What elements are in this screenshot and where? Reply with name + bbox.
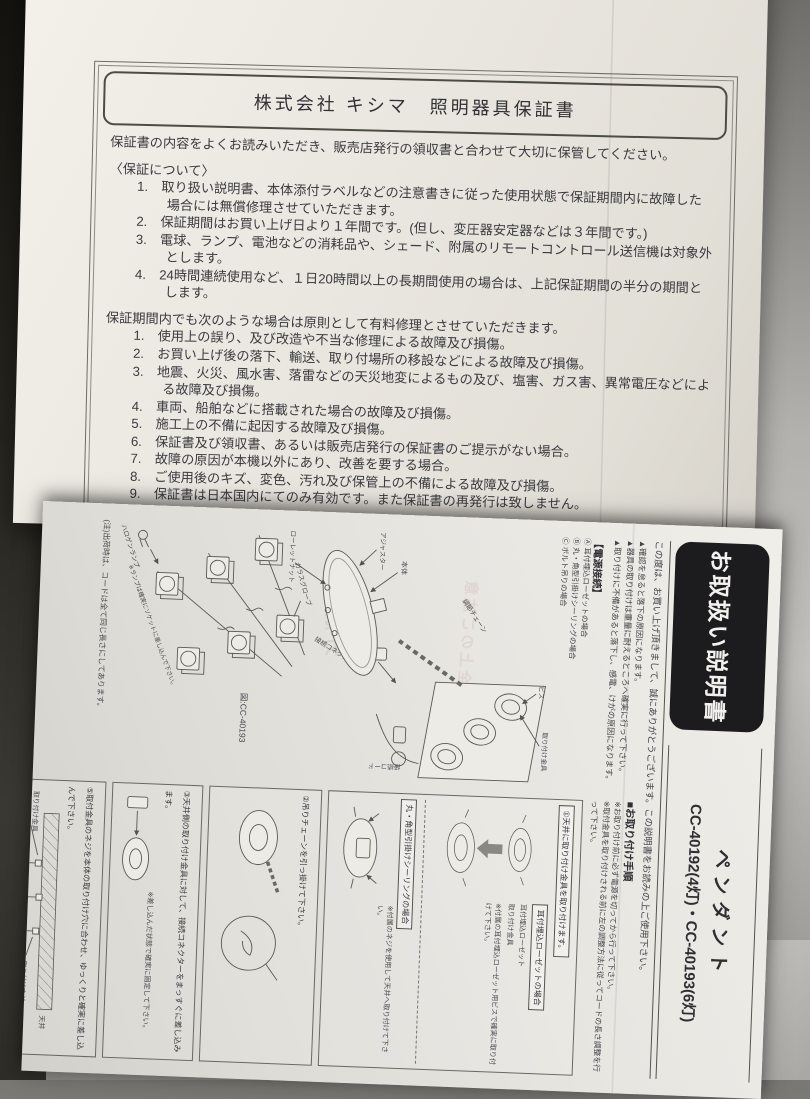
step-1-caption: ①天井に取り付け金具を取り付けます。 — [553, 805, 575, 958]
product-type: ペンダント — [706, 849, 738, 980]
step-panel-4: ⑤取付金具のネジを本体の取り付け穴に合わせ、ゆっくりと確実に差し込んで下さい。 … — [21, 774, 106, 1057]
step-panel-1: ①天井に取り付け金具を取り付けます。 — [318, 790, 583, 1076]
step-1-case-b: 丸・角型引掛けシーリングの場合 — [396, 799, 417, 930]
step-panel-2: ②吊りチェーンを引っ掛けて下さい。 — [199, 786, 323, 1066]
step-2-diagram-chain-hook — [211, 792, 299, 1045]
manual-content: お取扱い説明書 ペンダント CC-40192(4灯)・CC-40193(6灯) … — [32, 517, 770, 1082]
step-5-caption: ⑤取付金具のネジを本体の取り付け穴に合わせ、ゆっくりと確実に差し込んで下さい。 — [66, 786, 95, 1050]
part-label-body: 本体 — [400, 561, 410, 575]
step-1-note-b: ※付属のネジを使用して天井へ取り付けて下さい。 — [368, 905, 394, 1063]
manual-title: お取扱い説明書 — [699, 549, 740, 725]
part-label-halogen-lamp: ハロゲンランプ — [120, 523, 143, 569]
warranty-title: 株式会社 キシマ 照明器具保証書 — [253, 89, 577, 123]
warranty-sheet: 株式会社 キシマ 照明器具保証書 保証書の内容をよくお読みいただき、販売店発行の… — [13, 0, 769, 541]
manual-title-box: お取扱い説明書 — [669, 541, 770, 732]
step-1-diagram-ceiling-cap — [330, 796, 398, 899]
exploded-view-diagram: ビス 取り付け金具 接続コード 調節チェーン — [110, 520, 559, 789]
part-label-glass-globe: ガラスグローブ — [294, 561, 315, 607]
label-ceiling: 天井 — [37, 1015, 47, 1029]
part-label-chain: 調節チェーン — [461, 597, 490, 634]
step-1-note-a: ※付属の耳付埋込ローゼット用ビスで確実に取り付けて下さい。 — [476, 903, 502, 1067]
warranty-body: 保証書の内容をよくお読みいただき、販売店発行の領収書と合わせて大切に保管してくだ… — [100, 133, 716, 541]
step-1-diagram-rosette — [427, 800, 555, 899]
part-label-bracket: 取り付け金具 — [540, 732, 551, 772]
part-label-adjuster: アジャスター — [378, 532, 388, 571]
step-1-case-a: 耳付埋込ローゼットの場合 — [528, 904, 548, 1011]
manual-right-column: ■お取り付け手順 ※お取り付け前に必ず電源を切ってから行って下さい。 ※取付金具… — [21, 774, 638, 1078]
model-numbers: CC-40192(4灯)・CC-40193(6灯) — [678, 804, 707, 1023]
manual-left-column: ▲確認を怠ると落下の原因になります。 ▲器具の取り付けは重量に耐えるところへ確実… — [21, 512, 648, 792]
photo-of-documents: { "warranty": { "title": "株式会社 キシマ 照明器具保… — [0, 0, 810, 1080]
step-3-diagram-connector — [115, 788, 159, 885]
label-bracket: 取り付け金具 — [31, 791, 42, 832]
manual-header: お取扱い説明書 ペンダント CC-40192(4灯)・CC-40193(6灯) — [655, 541, 770, 1082]
part-label-cord: 接続コード — [368, 762, 401, 772]
step-panel-3: ③天井側の取り付け金具に対して、接続コネクターをまっすぐに差し込みます。 ※差し… — [102, 782, 204, 1061]
step-2-caption: ②吊りチェーンを引っ掛けて下さい。 — [296, 795, 310, 930]
step-3-caption: ③天井側の取り付け金具に対して、接続コネクターをまっすぐに差し込みます。 — [163, 790, 191, 1053]
shipping-note: (注)出荷時は、コードは全て同じ長さにしてあります。 — [92, 519, 113, 771]
step-3-note: ※差し込んだ状態で確実に固定して下さい。 — [139, 891, 154, 1032]
part-label-knurled-nut: ローレットナット — [288, 530, 298, 582]
figure-label: 図:CC-40193 — [238, 693, 250, 743]
model-block: ペンダント CC-40192(4灯)・CC-40193(6灯) — [655, 745, 762, 1082]
instruction-manual-sheet: 安全上のご注意 分解禁止 お取扱い説明書 ペンダント CC-40192(4灯)・… — [21, 501, 782, 1099]
